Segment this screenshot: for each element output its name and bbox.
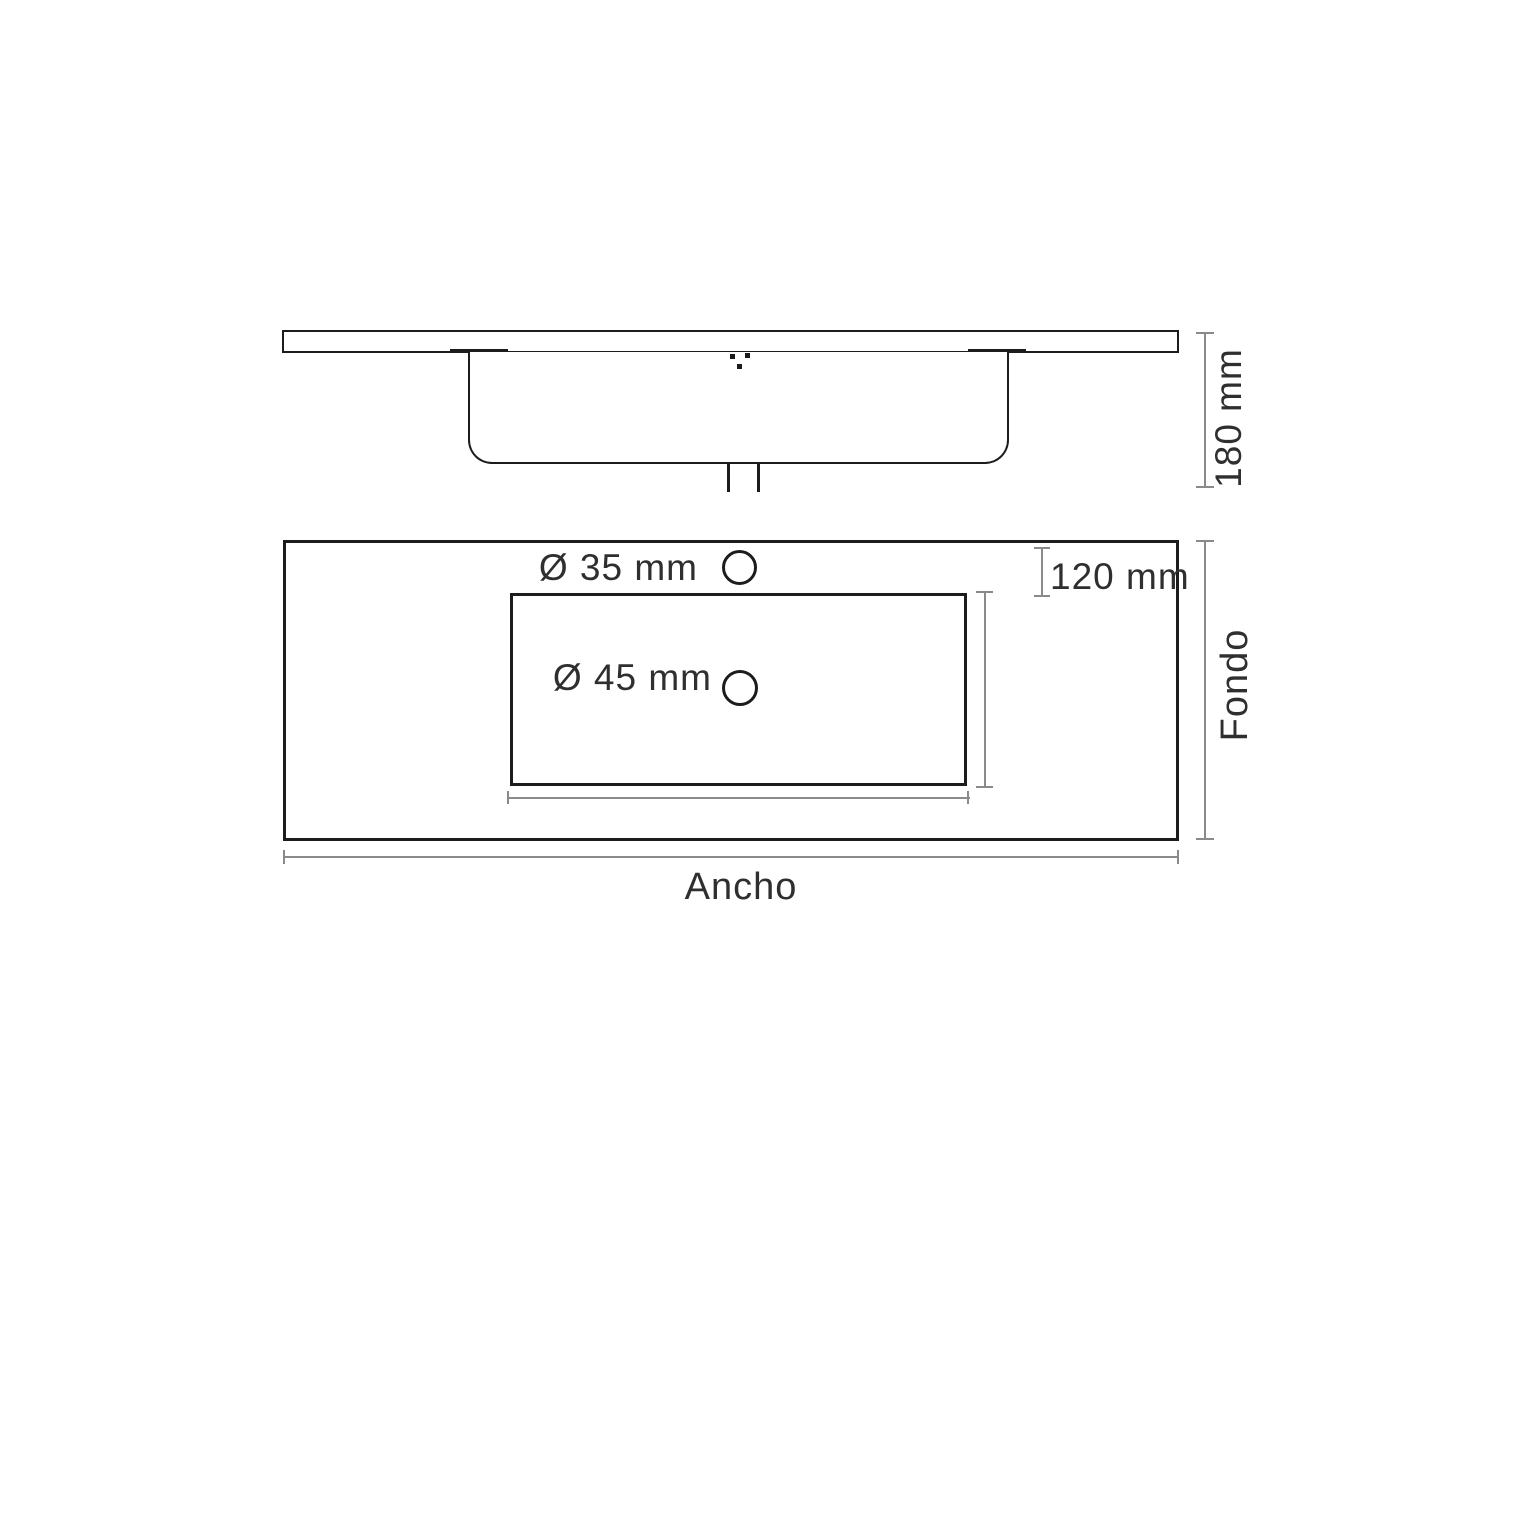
height-dimension-line bbox=[1204, 333, 1206, 488]
height-dimension-label: 180 mm bbox=[1208, 338, 1248, 498]
depth-dimension-line bbox=[1204, 540, 1206, 840]
countertop-slab-outline bbox=[282, 330, 1179, 353]
faucet-center-mark-dash bbox=[737, 364, 742, 369]
depth-dimension-tick-top bbox=[1196, 540, 1214, 542]
faucet-hole-label: Ø 35 mm bbox=[478, 547, 698, 589]
drain-pipe-left-line bbox=[727, 464, 730, 492]
faucet-offset-label: 120 mm bbox=[1050, 556, 1190, 598]
faucet-hole-circle bbox=[722, 550, 757, 585]
width-dimension-tick-right bbox=[1177, 850, 1179, 864]
drain-hole-circle bbox=[722, 670, 758, 706]
height-dimension-tick-top bbox=[1196, 332, 1214, 334]
width-dimension-tick-left bbox=[283, 850, 285, 864]
width-axis-label: Ancho bbox=[591, 866, 891, 908]
drain-pipe-right-line bbox=[757, 464, 760, 492]
width-dimension-line bbox=[283, 856, 1179, 858]
cutout-height-tick-top bbox=[976, 591, 993, 593]
cutout-width-tick-right bbox=[967, 791, 969, 804]
faucet-center-mark-dash bbox=[745, 353, 750, 358]
faucet-offset-tick-top bbox=[1034, 547, 1050, 549]
cutout-height-dimension-line bbox=[984, 592, 986, 788]
depth-axis-label: Fondo bbox=[1214, 605, 1254, 765]
cutout-width-dimension-line bbox=[508, 797, 970, 799]
faucet-center-mark-dash bbox=[730, 354, 735, 359]
washbasin-technical-drawing: 180 mm Ø 35 mm Ø 45 mm 120 mm Fondo bbox=[0, 0, 1524, 1536]
cutout-height-tick-bottom bbox=[976, 786, 993, 788]
faucet-offset-dimension-line bbox=[1041, 548, 1043, 597]
faucet-offset-tick-bottom bbox=[1034, 595, 1050, 597]
cutout-width-tick-left bbox=[507, 791, 509, 804]
depth-dimension-tick-bottom bbox=[1196, 838, 1214, 840]
drain-hole-label: Ø 45 mm bbox=[492, 657, 712, 699]
